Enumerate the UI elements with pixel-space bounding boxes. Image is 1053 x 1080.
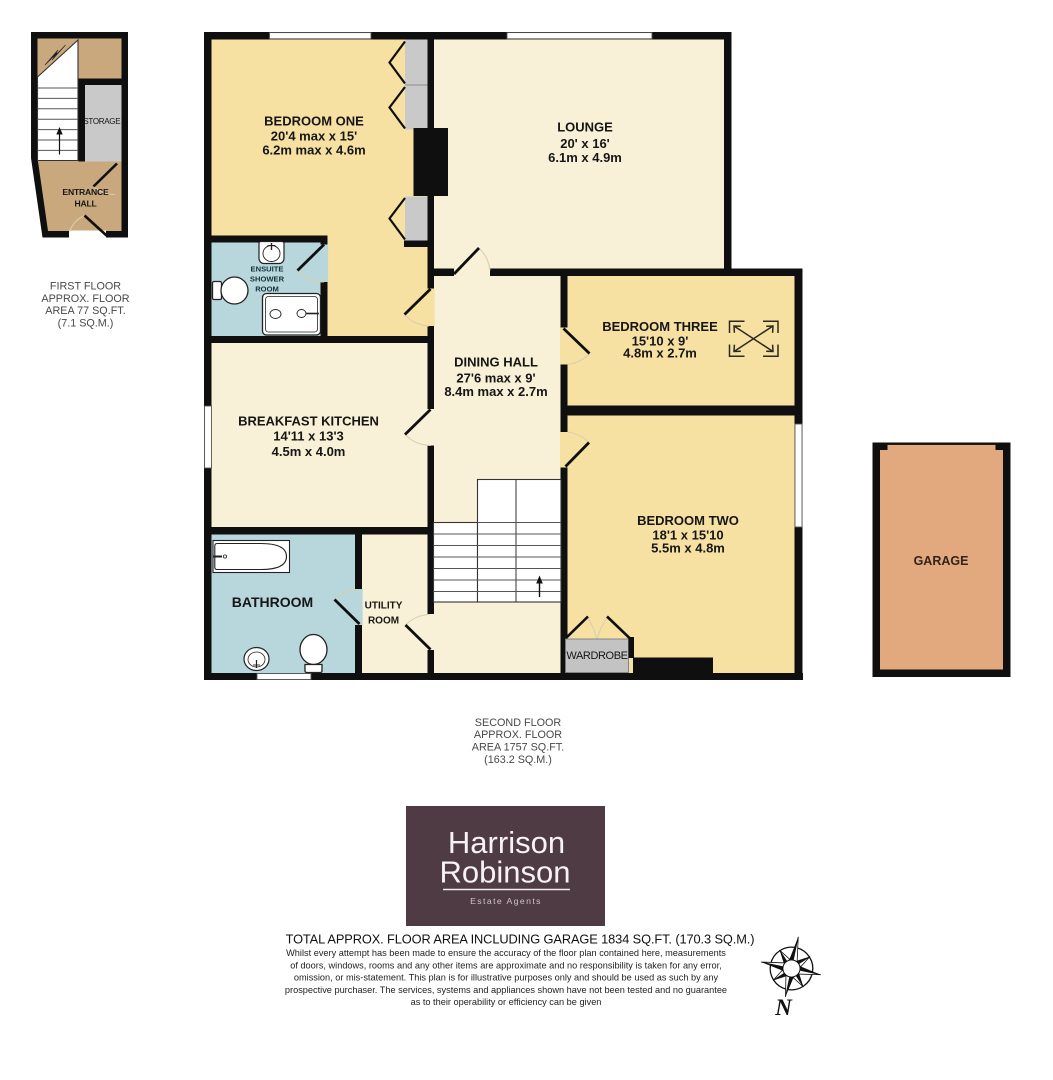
svg-text:FIRST FLOOR: FIRST FLOOR	[50, 281, 121, 293]
svg-text:6.1m x 4.9m: 6.1m x 4.9m	[548, 150, 622, 165]
svg-text:6.2m max x 4.6m: 6.2m max x 4.6m	[262, 143, 365, 158]
svg-text:BEDROOM TWO: BEDROOM TWO	[637, 513, 739, 528]
svg-text:Robinson: Robinson	[440, 855, 571, 890]
svg-text:BREAKFAST KITCHEN: BREAKFAST KITCHEN	[238, 414, 379, 429]
svg-text:(7.1 SQ.M.): (7.1 SQ.M.)	[58, 317, 114, 329]
svg-text:4.5m x 4.0m: 4.5m x 4.0m	[272, 444, 346, 459]
svg-text:STORAGE: STORAGE	[83, 117, 120, 126]
svg-text:ENTRANCE: ENTRANCE	[62, 187, 109, 197]
svg-text:SHOWER: SHOWER	[250, 275, 285, 284]
svg-text:APPROX. FLOOR: APPROX. FLOOR	[474, 729, 562, 741]
svg-text:DINING HALL: DINING HALL	[454, 354, 538, 369]
svg-text:ENSUITE: ENSUITE	[251, 265, 284, 274]
svg-text:GARAGE: GARAGE	[914, 554, 969, 568]
svg-text:AREA 1757 SQ.FT.: AREA 1757 SQ.FT.	[472, 742, 564, 754]
svg-text:prospective purchaser. The ser: prospective purchaser. The services, sys…	[285, 985, 727, 995]
svg-text:TOTAL APPROX. FLOOR AREA INCLU: TOTAL APPROX. FLOOR AREA INCLUDING GARAG…	[286, 932, 755, 947]
svg-text:HALL: HALL	[74, 198, 96, 208]
svg-text:(163.2 SQ.M.): (163.2 SQ.M.)	[484, 754, 552, 766]
svg-text:BEDROOM ONE: BEDROOM ONE	[264, 113, 364, 128]
svg-text:LOUNGE: LOUNGE	[557, 120, 613, 135]
svg-text:omission, or mis-statement. Th: omission, or mis-statement. This plan is…	[294, 973, 719, 983]
svg-text:ROOM: ROOM	[368, 616, 399, 627]
svg-text:14'11 x 13'3: 14'11 x 13'3	[273, 429, 344, 444]
svg-text:ROOM: ROOM	[255, 284, 279, 293]
svg-text:BATHROOM: BATHROOM	[232, 594, 313, 610]
svg-text:AREA 77 SQ.FT.: AREA 77 SQ.FT.	[45, 305, 125, 317]
svg-text:WARDROBE: WARDROBE	[566, 650, 627, 662]
svg-text:as to their operability or eff: as to their operability or efficiency ca…	[411, 997, 602, 1007]
svg-text:SECOND FLOOR: SECOND FLOOR	[475, 717, 562, 729]
svg-text:8.4m max x 2.7m: 8.4m max x 2.7m	[444, 384, 547, 399]
svg-text:UTILITY: UTILITY	[365, 601, 403, 612]
svg-text:of doors, windows, rooms and a: of doors, windows, rooms and any other i…	[290, 960, 722, 970]
svg-text:5.5m x 4.8m: 5.5m x 4.8m	[651, 541, 725, 556]
svg-text:N: N	[774, 995, 793, 1020]
svg-text:APPROX. FLOOR: APPROX. FLOOR	[41, 293, 129, 305]
svg-text:20' x 16': 20' x 16'	[560, 136, 610, 151]
svg-text:Whilst every attempt has been: Whilst every attempt has been made to en…	[286, 948, 726, 958]
svg-text:20'4 max x 15': 20'4 max x 15'	[271, 128, 357, 143]
svg-text:4.8m x 2.7m: 4.8m x 2.7m	[623, 346, 697, 361]
svg-text:Estate Agents: Estate Agents	[470, 896, 542, 906]
svg-text:BEDROOM THREE: BEDROOM THREE	[602, 319, 718, 334]
